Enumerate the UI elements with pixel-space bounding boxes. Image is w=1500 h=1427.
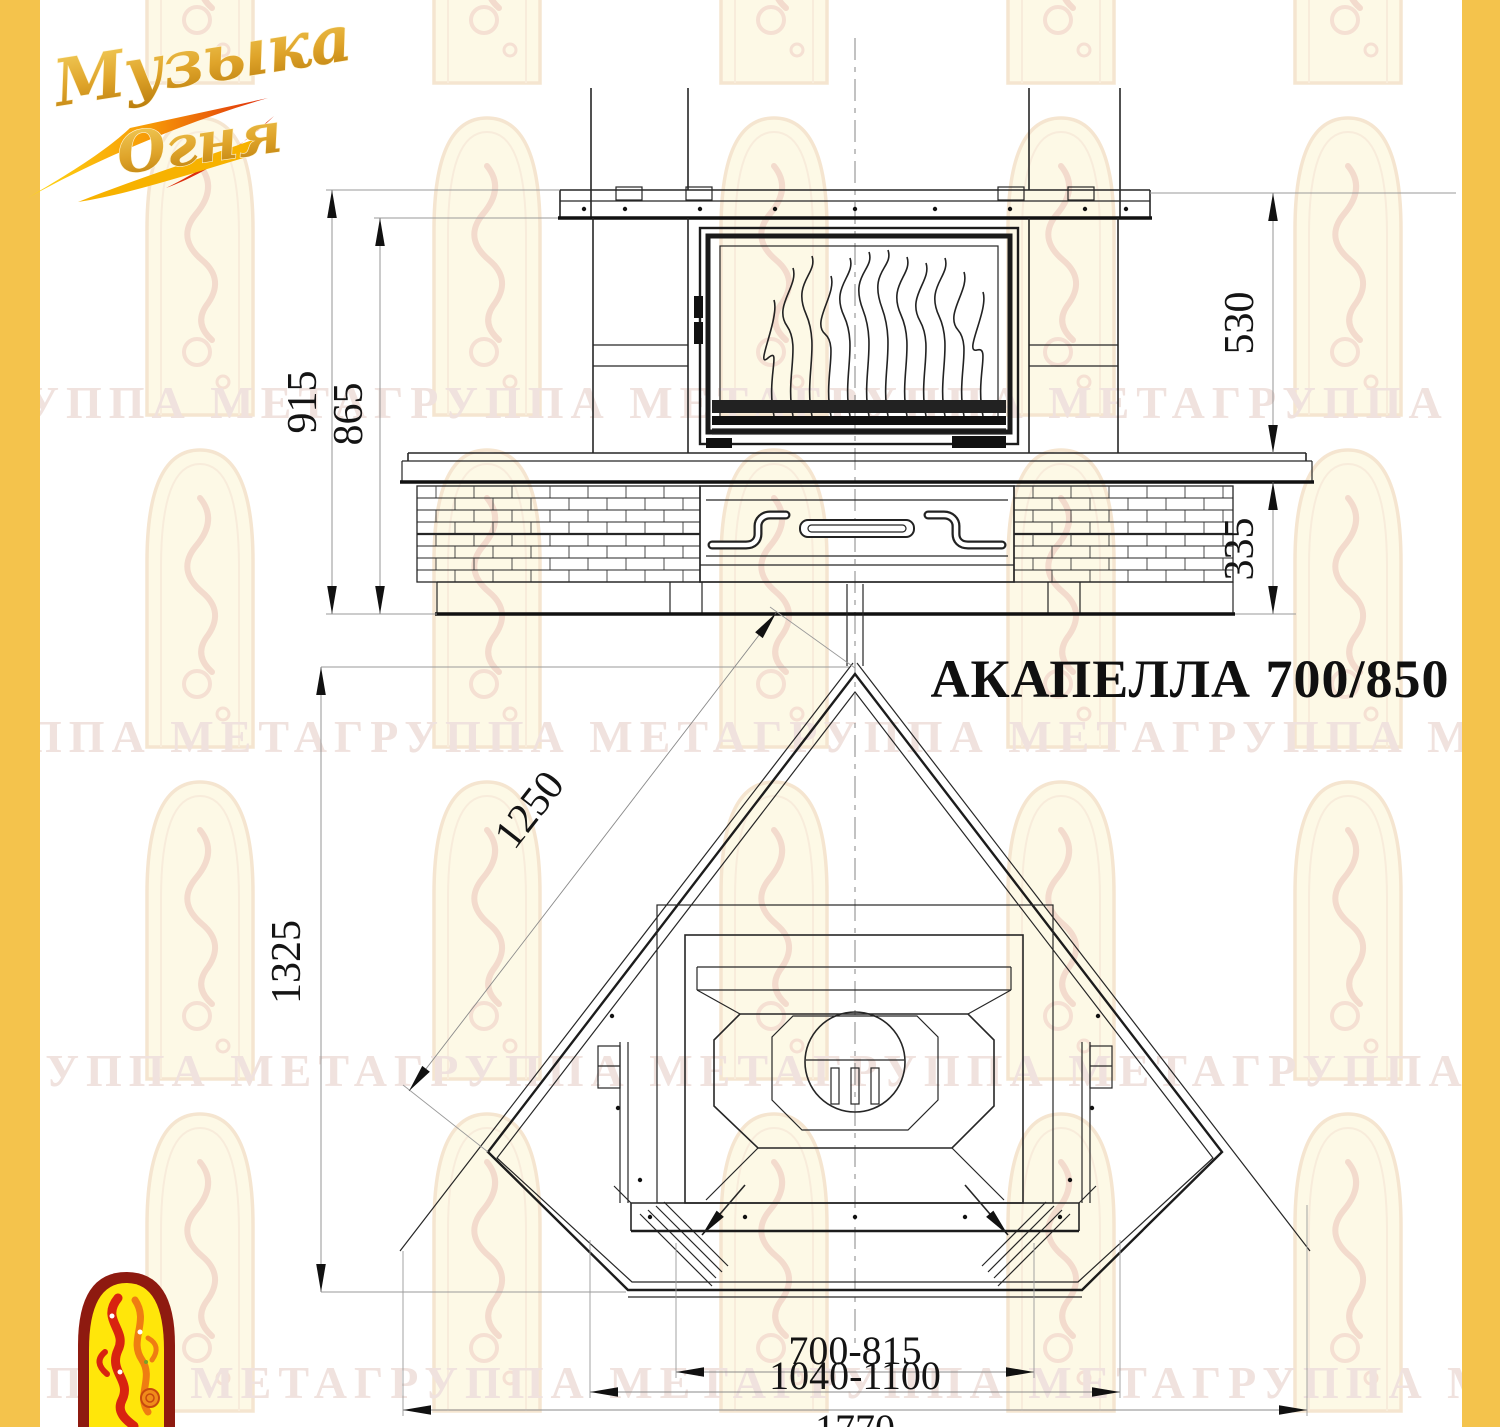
watermark-row: ГРУППА МЕТАГРУППА МЕТАГРУППА МЕТАГРУППА … — [0, 1045, 1500, 1096]
meta-arch-emblem-icon — [78, 1272, 175, 1427]
dim-hearth-width: 1040-1100 — [769, 1353, 941, 1398]
dim-total-height: 915 — [280, 371, 326, 434]
model-title: АКАПЕЛЛА 700/850 — [930, 649, 1449, 709]
right-yellow-band — [1462, 0, 1500, 1427]
dim-firebox-height: 530 — [1217, 292, 1263, 355]
watermark-row: ГРУППА МЕТАГРУППА МЕТАГРУППА МЕТАГРУППА … — [0, 1357, 1500, 1408]
watermark-row: ГРУППА МЕТАГРУППА МЕТАГРУППА МЕТАГРУППА … — [0, 711, 1500, 762]
dim-body-height: 865 — [326, 383, 372, 446]
technical-drawing-canvas: ГРУППА МЕТАГРУППА МЕТАГРУППА МЕТАГРУППА … — [0, 0, 1500, 1427]
dim-overall-width: 1770 — [815, 1406, 895, 1427]
page: ГРУППА МЕТАГРУППА МЕТАГРУППА МЕТАГРУППА … — [0, 0, 1500, 1427]
dim-depth: 1325 — [264, 920, 310, 1004]
left-yellow-band — [0, 0, 40, 1427]
dim-plinth-height: 335 — [1217, 518, 1263, 581]
